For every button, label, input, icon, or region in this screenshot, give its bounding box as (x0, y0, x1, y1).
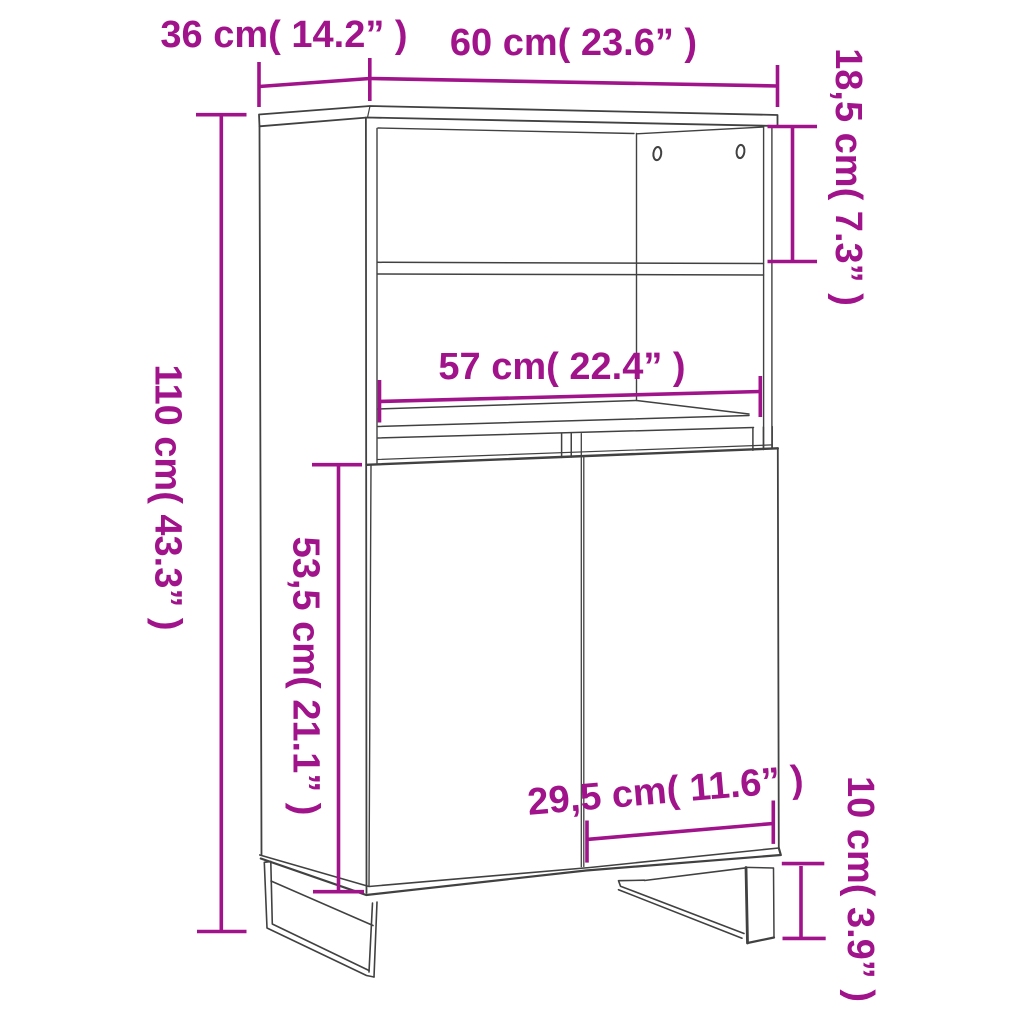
svg-text:60 cm( 23.6” ): 60 cm( 23.6” ) (450, 22, 697, 64)
svg-text:110 cm( 43.3” ): 110 cm( 43.3” ) (147, 364, 189, 630)
svg-text:36 cm( 14.2” ): 36 cm( 14.2” ) (160, 14, 407, 56)
svg-text:10 cm( 3.9” ): 10 cm( 3.9” ) (839, 776, 881, 1002)
svg-text:57 cm( 22.4” ): 57 cm( 22.4” ) (438, 346, 685, 388)
svg-text:53,5 cm( 21.1” ): 53,5 cm( 21.1” ) (285, 537, 327, 816)
svg-text:18,5 cm( 7.3” ): 18,5 cm( 7.3” ) (827, 48, 869, 306)
